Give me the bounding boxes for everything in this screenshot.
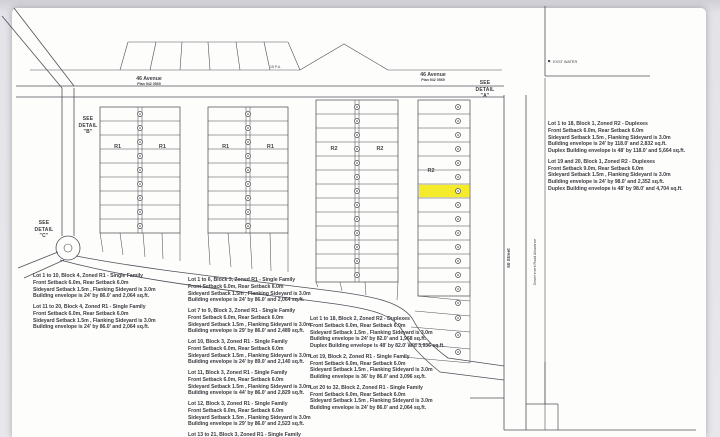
top-lots (30, 42, 502, 70)
utility-symbol-dot (139, 141, 141, 143)
utility-symbol-dot (356, 134, 358, 136)
utility-symbol-dot (356, 274, 358, 276)
zone-label: R2 (427, 168, 434, 174)
note-line: Front Setback 6.0m, Rear Setback 6.0m (310, 361, 435, 368)
note-line: Lot 20 to 32, Block 2, Zoned R1 - Single… (310, 385, 435, 392)
utility-symbol-dot (139, 113, 141, 115)
note-paragraph: Lot 1 to 18, Block 1, Zoned R2 - Duplexe… (548, 121, 713, 155)
zone-label: R1 (114, 144, 121, 150)
note-line: Lot 19 and 20, Block 1, Zoned R2 - Duple… (548, 159, 713, 166)
note-line: Lot 19, Block 2, Zoned R1 - Single Famil… (310, 354, 435, 361)
lot-block-block3: R1R1 (208, 107, 288, 233)
utility-symbol-dot (356, 162, 358, 164)
note-line: Front Setback 6.0m, Rear Setback 6.0m (188, 377, 313, 384)
see-detail-a-line3: "A" (470, 93, 500, 100)
lot-block-block2: R2R2 (316, 100, 398, 282)
highlighted-lot[interactable] (419, 185, 469, 197)
note-line: Front Setback 6.0m, Rear Setback 6.0m (33, 311, 203, 318)
note-line: Building envelope is 24' by 86.0' and 2,… (33, 324, 203, 331)
note-paragraph: Lot 1 to 18, Block 2, Zoned R2 - Duplexe… (310, 316, 435, 350)
see-detail-b-line3: "B" (74, 129, 102, 136)
avenue-west-label: 46 Avenue Plan 942 0569 (112, 76, 186, 86)
utility-symbol-dot (247, 211, 249, 213)
zoning-note-block2: Lot 1 to 18, Block 2, Zoned R2 - Duplexe… (310, 316, 435, 416)
note-line: Sideyard Setback 1.5m , Flanking Sideyar… (188, 353, 313, 360)
utility-symbol-dot (457, 302, 459, 304)
utility-symbol-dot (356, 246, 358, 248)
screenshot-stage: R1R1R1R1R2R2R2 50 Street Government Road… (0, 0, 720, 437)
utility-symbol-dot (356, 218, 358, 220)
note-line: Building envelope is 29' by 86.0' and 2,… (188, 421, 313, 428)
utility-symbol-dot (139, 197, 141, 199)
utility-symbol-dot (457, 260, 459, 262)
road-allowance-label: Government Road Allowance (533, 239, 537, 286)
note-paragraph: Lot 10, Block 3, Zoned R1 - Single Famil… (188, 339, 313, 366)
utility-symbol-dot (356, 232, 358, 234)
utility-symbol-dot (457, 317, 459, 319)
zone-label: R1 (222, 144, 229, 150)
utility-symbol-dot (356, 260, 358, 262)
note-paragraph: Lot 12, Block 3, Zoned R1 - Single Famil… (188, 401, 313, 428)
note-line: Sideyard Setback 1.5m , Flanking Sideyar… (188, 415, 313, 422)
water-note-label: EXST WATER (553, 60, 577, 64)
note-line: Front Setback 6.0m, Rear Setback 6.0m (310, 392, 435, 399)
utility-symbol-dot (247, 155, 249, 157)
utility-symbol-dot (457, 204, 459, 206)
note-line: Front Setback 6.0m, Rear Setback 6.0m (188, 315, 313, 322)
lot-block-block4: R1R1 (100, 107, 180, 233)
note-paragraph: Lot 13 to 21, Block 3, Zoned R1 - Single… (188, 432, 313, 437)
utility-symbol-dot (139, 127, 141, 129)
utility-symbol-dot (457, 134, 459, 136)
note-line: Building envelope is 24' by 82.0' and 1,… (310, 336, 435, 343)
note-paragraph: Lot 20 to 32, Block 2, Zoned R1 - Single… (310, 385, 435, 412)
note-line: Building envelope is 36' by 86.0' and 3,… (310, 374, 435, 381)
note-paragraph: Lot 11 to 20, Block 4, Zoned R1 - Single… (33, 304, 203, 331)
note-line: Sideyard Setback 1.5m , Flanking Sideyar… (188, 322, 313, 329)
note-line: Sideyard Setback 1.5m , Flanking Sideyar… (310, 330, 435, 337)
utility-symbol-dot (356, 176, 358, 178)
utility-symbol-dot (457, 176, 459, 178)
note-line: Lot 13 to 21, Block 3, Zoned R1 - Single… (188, 432, 313, 437)
note-paragraph: Lot 1 to 6, Block 3, Zoned R1 - Single F… (188, 277, 313, 304)
see-detail-a-label: SEE DETAIL "A" (470, 80, 500, 100)
utility-symbol-dot (457, 190, 459, 192)
note-line: Lot 7 to 9, Block 3, Zoned R1 - Single F… (188, 308, 313, 315)
note-paragraph: Lot 11, Block 3, Zoned R1 - Single Famil… (188, 370, 313, 397)
note-paragraph: Lot 7 to 9, Block 3, Zoned R1 - Single F… (188, 308, 313, 335)
utility-symbol-dot (247, 183, 249, 185)
note-line: Building envelope is 24' by 98.0' and 2,… (548, 179, 713, 186)
zone-label: R1 (159, 144, 166, 150)
note-line: Front Setback 9.0m, Rear Setback 6.0m (548, 166, 713, 173)
utility-symbol-dot (356, 120, 358, 122)
note-line: Building envelope is 24' by 86.0' and 2,… (188, 297, 313, 304)
utility-symbol-dot (457, 218, 459, 220)
street-right-label: 50 Street (506, 248, 511, 268)
note-paragraph: Lot 19, Block 2, Zoned R1 - Single Famil… (310, 354, 435, 381)
utility-symbol-dot (457, 148, 459, 150)
pu-note-label: 15 P.U. (270, 65, 281, 69)
note-line: Duplex Building envelope is 48' by 118.0… (548, 148, 713, 155)
utility-symbol-dot (247, 169, 249, 171)
note-line: Front Setback 6.0m, Rear Setback 6.0m (188, 284, 313, 291)
utility-symbol-dot (457, 232, 459, 234)
zoning-note-block3: Lot 1 to 6, Block 3, Zoned R1 - Single F… (188, 277, 313, 437)
note-line: Lot 10, Block 3, Zoned R1 - Single Famil… (188, 339, 313, 346)
note-line: Lot 12, Block 3, Zoned R1 - Single Famil… (188, 401, 313, 408)
note-line: Lot 1 to 18, Block 2, Zoned R2 - Duplexe… (310, 316, 435, 323)
utility-symbol-dot (457, 351, 459, 353)
note-line: Building envelope is 24' by 86.0' and 2,… (33, 293, 203, 300)
note-line: Sideyard Setback 1.5m , Flanking Sideyar… (188, 384, 313, 391)
see-detail-b-label: SEE DETAIL "B" (74, 116, 102, 136)
note-line: Front Setback 6.0m, Rear Setback 6.0m (310, 323, 435, 330)
note-line: Lot 11 to 20, Block 4, Zoned R1 - Single… (33, 304, 203, 311)
note-line: Sideyard Setback 1.5m , Flanking Sideyar… (188, 291, 313, 298)
utility-symbol-dot (247, 113, 249, 115)
note-line: Duplex Building envelope is 48' by 82.0'… (310, 343, 435, 350)
avenue-west-plan: Plan 942 0569 (112, 82, 186, 86)
utility-symbol-dot (457, 246, 459, 248)
utility-symbol-dot (247, 197, 249, 199)
note-line: Building envelope is 24' by 86.0' and 2,… (310, 405, 435, 412)
utility-symbol-dot (457, 274, 459, 276)
note-line: Lot 11, Block 3, Zoned R1 - Single Famil… (188, 370, 313, 377)
utility-symbol-dot (457, 106, 459, 108)
note-line: Sideyard Setback 1.5m , Flanking Sideyar… (548, 135, 713, 142)
utility-symbol-dot (139, 225, 141, 227)
note-line: Sideyard Setback 1.5m , Flanking Sideyar… (33, 287, 203, 294)
see-detail-c-label: SEE DETAIL "C" (30, 220, 58, 240)
utility-symbol-dot (457, 288, 459, 290)
note-line: Front Setback 6.0m, Rear Setback 6.0m (33, 280, 203, 287)
utility-symbol-dot (139, 183, 141, 185)
note-line: Lot 1 to 10, Block 4, Zoned R1 - Single … (33, 273, 203, 280)
utility-symbol-dot (457, 334, 459, 336)
utility-symbol-dot (356, 106, 358, 108)
utility-symbol-dot (247, 225, 249, 227)
note-line: Lot 1 to 18, Block 1, Zoned R2 - Duplexe… (548, 121, 713, 128)
utility-symbol-dot (356, 204, 358, 206)
see-detail-c-line3: "C" (30, 233, 58, 240)
zone-label: R2 (331, 146, 338, 152)
zoning-note-block4: Lot 1 to 10, Block 4, Zoned R1 - Single … (33, 273, 203, 335)
note-line: Lot 1 to 6, Block 3, Zoned R1 - Single F… (188, 277, 313, 284)
note-line: Front Setback 6.0m, Rear Setback 6.0m (188, 346, 313, 353)
note-line: Front Setback 6.0m, Rear Setback 6.0m (188, 408, 313, 415)
zone-label: R1 (267, 144, 274, 150)
note-line: Building envelope is 29' by 86.0' and 2,… (188, 328, 313, 335)
note-line: Duplex Building envelope is 48' by 98.0'… (548, 186, 713, 193)
utility-symbol-dot (139, 169, 141, 171)
zone-label: R2 (376, 146, 383, 152)
utility-symbol-dot (356, 148, 358, 150)
utility-symbol-dot (139, 155, 141, 157)
note-line: Building envelope is 44' by 86.0' and 2,… (188, 390, 313, 397)
note-paragraph: Lot 1 to 10, Block 4, Zoned R1 - Single … (33, 273, 203, 300)
avenue-east-plan: Plan 942 0569 (396, 78, 470, 82)
note-line: Building envelope is 24' by 89.0' and 2,… (188, 359, 313, 366)
note-line: Front Setback 6.0m, Rear Setback 6.0m (548, 128, 713, 135)
zoning-note-block1: Lot 1 to 18, Block 1, Zoned R2 - Duplexe… (548, 121, 713, 197)
avenue-east-label: 46 Avenue Plan 942 0569 (396, 72, 470, 82)
note-paragraph: Lot 19 and 20, Block 1, Zoned R2 - Duple… (548, 159, 713, 193)
utility-symbol-dot (457, 162, 459, 164)
note-line: Building envelope is 24' by 118.0' and 2… (548, 141, 713, 148)
utility-symbol-dot (139, 211, 141, 213)
utility-symbol-dot (356, 190, 358, 192)
utility-symbol-dot (457, 120, 459, 122)
utility-symbol-dot (247, 141, 249, 143)
note-line: Sideyard Setback 1.5m , Flanking Sideyar… (33, 318, 203, 325)
note-line: Sideyard Setback 1.5m , Flanking Sideyar… (548, 172, 713, 179)
note-line: Sideyard Setback 1.5m , Flanking Sideyar… (310, 398, 435, 405)
note-line: Sideyard Setback 1.5m , Flanking Sideyar… (310, 367, 435, 374)
utility-symbol-dot (247, 127, 249, 129)
